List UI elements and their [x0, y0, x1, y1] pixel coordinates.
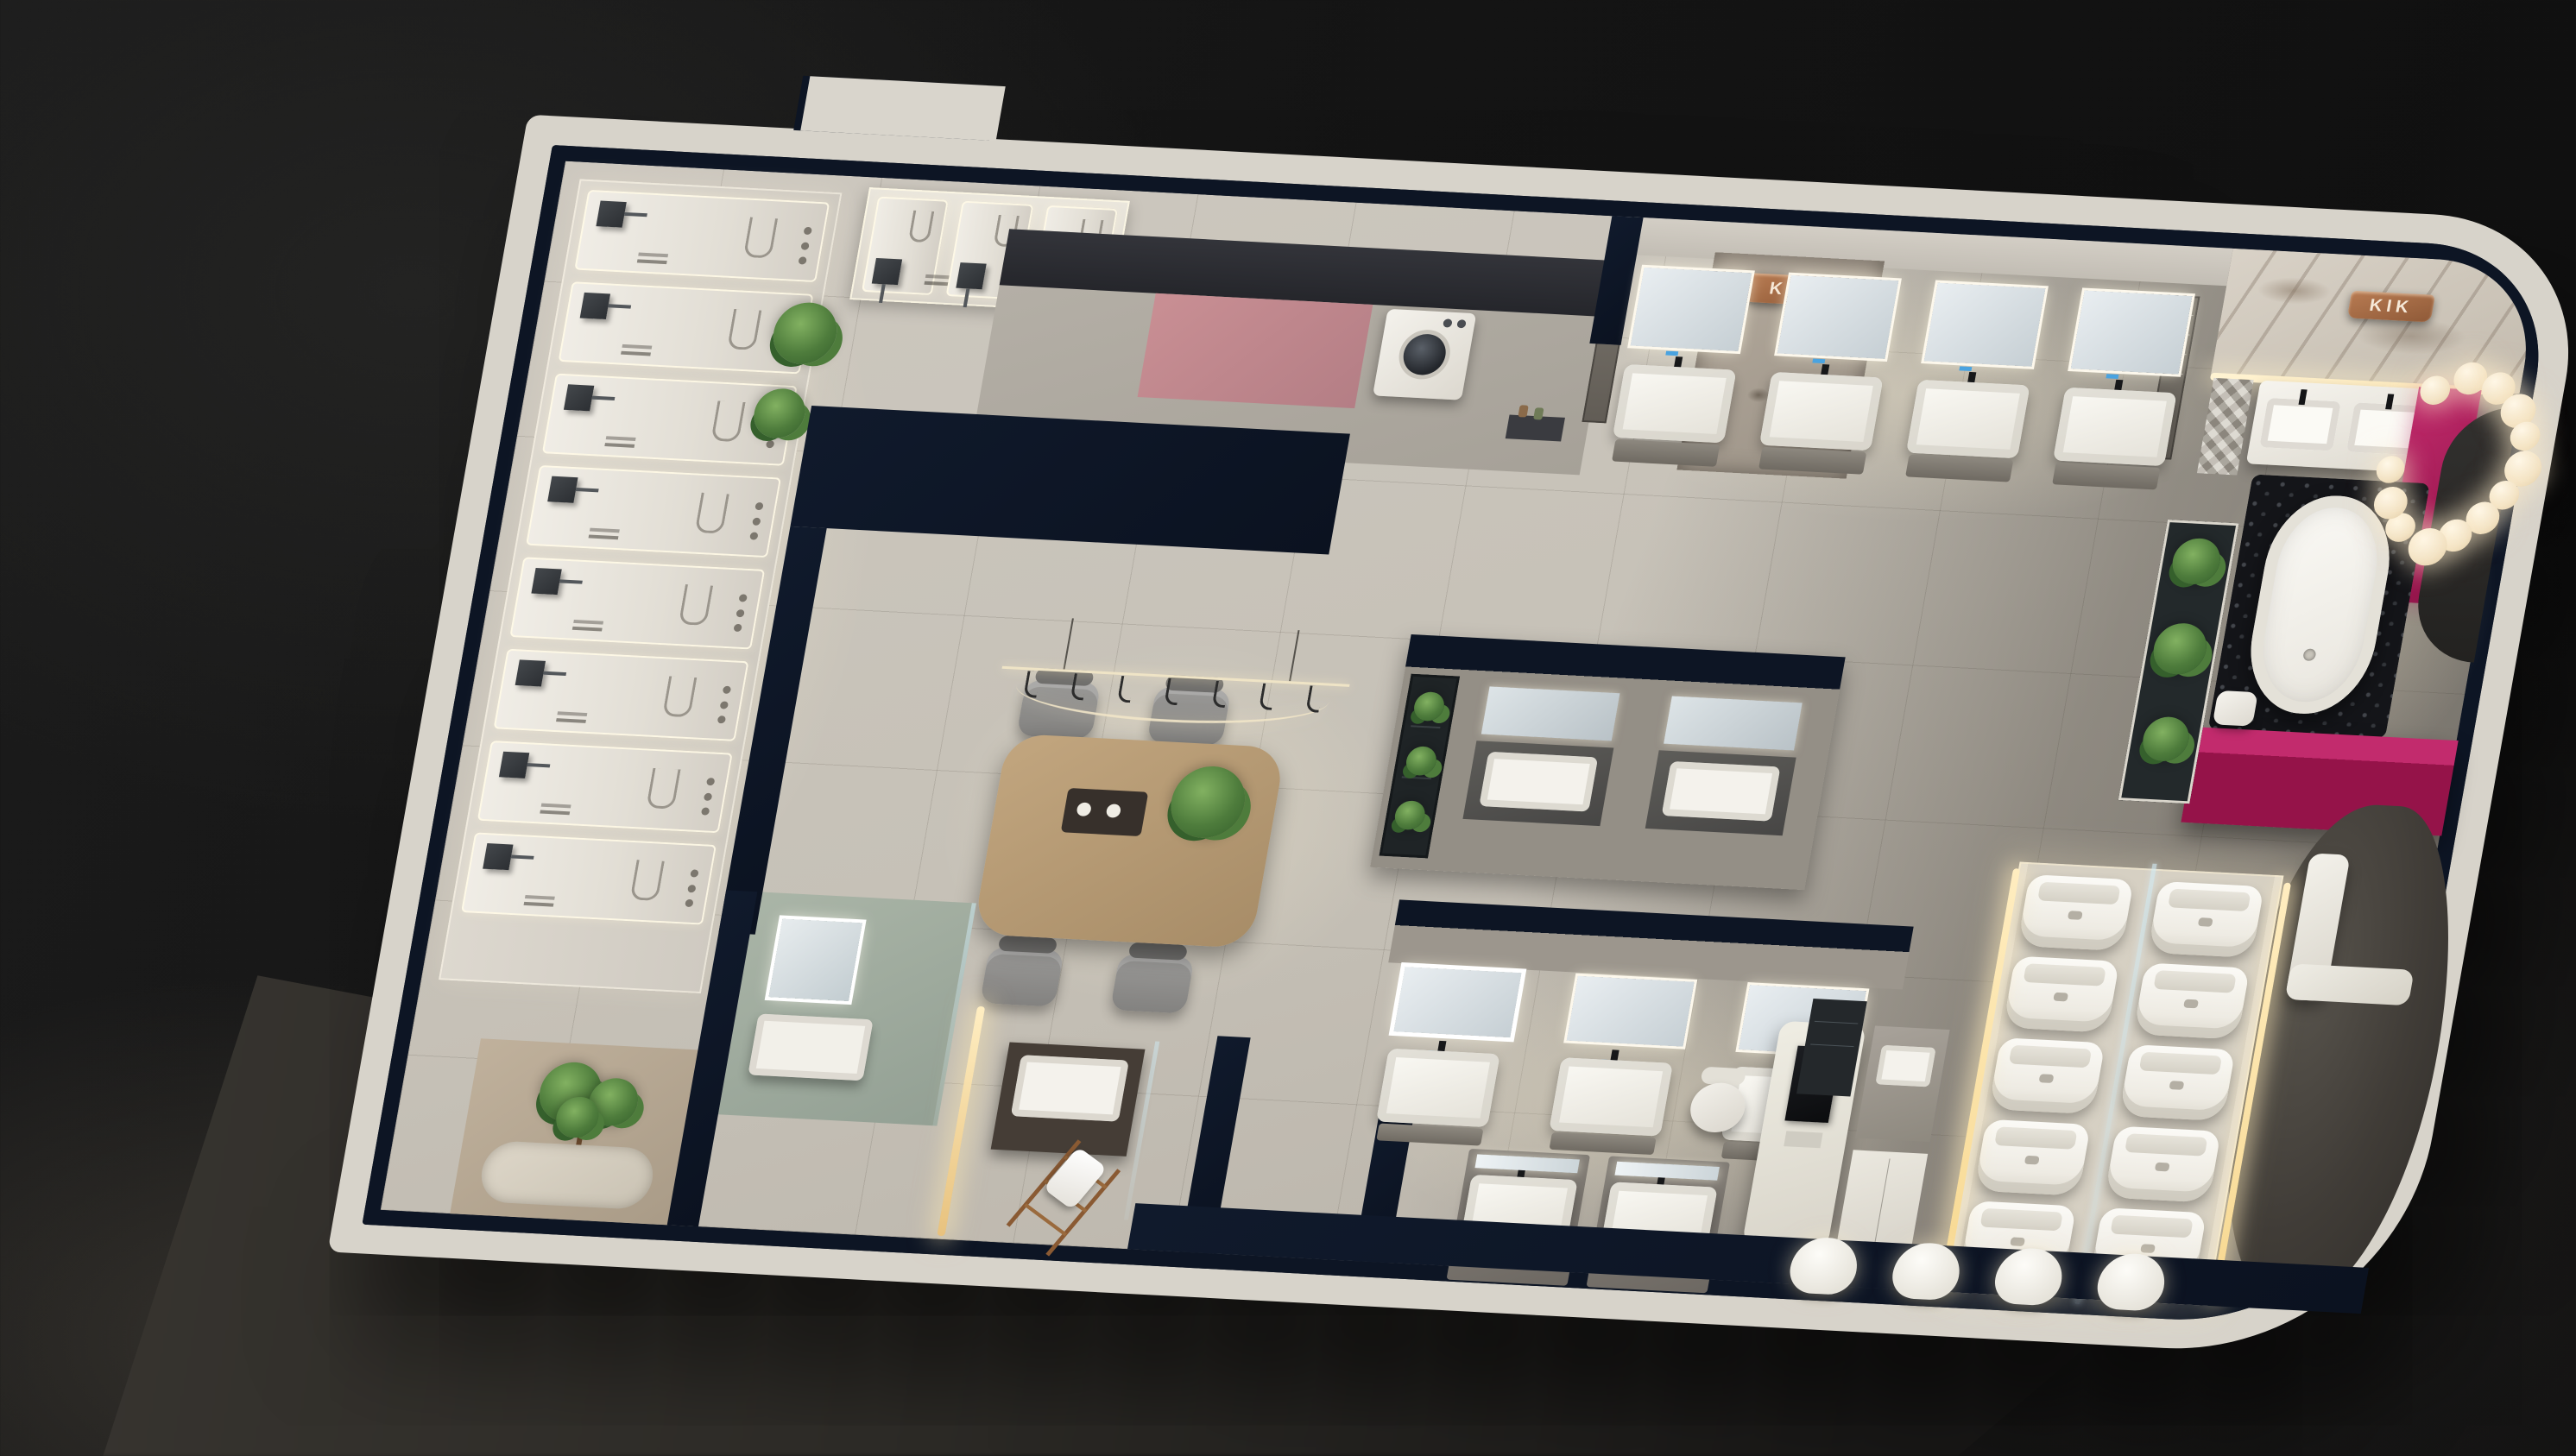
showroom-building: KIK	[362, 145, 2559, 1330]
hook	[1211, 681, 1228, 708]
led-mirror	[2071, 291, 2193, 375]
hook	[1259, 684, 1276, 710]
product-code-label	[589, 534, 619, 539]
washer-door	[1400, 333, 1449, 376]
hook	[1117, 676, 1134, 703]
vanity-cabinet	[2052, 463, 2160, 490]
shower-panel	[494, 649, 749, 741]
keyboard	[1784, 1131, 1822, 1148]
mixer-knobs	[685, 869, 700, 907]
rain-shower-head	[531, 568, 561, 595]
led-mirror	[1631, 268, 1752, 351]
rain-shower-head	[564, 384, 594, 411]
led-mirror	[1777, 275, 1899, 359]
vase	[1518, 405, 1528, 417]
chair-seat	[1687, 1081, 1749, 1133]
vanity-unit	[1451, 686, 1629, 864]
hand-shower-hose	[908, 211, 935, 243]
price-tag	[1959, 366, 1972, 371]
toilet	[2118, 1044, 2235, 1121]
mixer-knobs	[717, 686, 733, 724]
cups	[1076, 802, 1092, 816]
shower-panel	[574, 190, 830, 282]
shelf-plant	[1392, 800, 1427, 830]
render-canvas: { "scene": { "description": "Top-down 3D…	[0, 0, 2576, 1456]
consultation-area	[906, 612, 1376, 1032]
washbasin	[1613, 364, 1737, 443]
textured-tile-column	[2197, 378, 2254, 476]
toilet	[2148, 881, 2264, 958]
rain-shower-head	[483, 843, 513, 870]
washbasin	[2259, 398, 2341, 451]
bench-seat	[2285, 963, 2415, 1005]
vanity-unit	[1633, 696, 1811, 873]
shower-panel	[509, 557, 765, 649]
led-mirror	[1481, 686, 1620, 741]
washbasin	[1906, 380, 2030, 458]
vanity-cabinet	[1758, 447, 1866, 475]
price-tag	[1665, 351, 1678, 356]
product-code-label	[524, 902, 554, 907]
hand-shower-hose	[710, 400, 745, 442]
pendant-wire	[1289, 630, 1299, 681]
shower-panel	[862, 197, 949, 296]
towel	[1043, 1147, 1107, 1210]
exterior-wall-fin	[800, 76, 1005, 141]
indoor-tree	[513, 1051, 660, 1151]
pendant-light	[991, 630, 1356, 750]
wall-hung-basin	[1786, 1236, 1862, 1295]
chair	[980, 947, 1064, 1007]
toilet	[2003, 956, 2119, 1033]
product-code-label	[621, 351, 651, 356]
product-code-label	[604, 443, 635, 448]
hook	[1165, 678, 1182, 705]
hand-shower-hose	[743, 217, 778, 259]
hook	[1023, 671, 1040, 697]
led-mirror	[1393, 967, 1521, 1037]
vanity-unit	[2042, 287, 2203, 502]
toilet	[2017, 874, 2134, 951]
hand-shower-hose	[695, 493, 729, 534]
vanity-cabinet	[1612, 439, 1720, 467]
plant	[2139, 715, 2192, 762]
decor-shelf	[1506, 415, 1565, 442]
price-tag	[1812, 358, 1825, 363]
chandelier-bulb	[2418, 375, 2453, 406]
wall-hung-basin	[1889, 1241, 1965, 1301]
island-vanity-units	[1451, 686, 1811, 873]
led-mirror-strip	[1474, 1154, 1580, 1173]
chandelier-bulb	[2374, 455, 2407, 483]
rain-shower-head	[872, 258, 902, 285]
office-chair	[1679, 1066, 1758, 1144]
wall-hung-basin	[2093, 1252, 2169, 1312]
rain-shower-head	[957, 262, 987, 289]
hand-shower-hose	[679, 584, 713, 626]
washing-machine	[1373, 309, 1476, 400]
kik-logo-sign-marble: KIK	[2347, 291, 2435, 323]
hand-shower-hose	[646, 768, 680, 810]
wall-hung-basin	[1991, 1247, 2067, 1307]
mixer-knobs	[749, 502, 765, 540]
toilet	[2105, 1126, 2221, 1203]
product-code-label	[540, 810, 570, 816]
rain-shower-head	[580, 293, 610, 319]
rose-worktop	[1138, 293, 1373, 408]
toilet	[1988, 1037, 2105, 1114]
shower-panel	[477, 741, 733, 833]
washer-dials	[1456, 319, 1467, 328]
display-sink	[1875, 1045, 1935, 1087]
toilet	[1974, 1119, 2091, 1196]
pendant-wire	[1064, 618, 1074, 669]
washbasin	[1011, 1055, 1129, 1121]
hand-shower-hose	[630, 860, 665, 901]
rain-shower-head	[547, 476, 578, 503]
led-mirror	[768, 919, 862, 1001]
vanity-unit	[1895, 279, 2056, 495]
led-mirror	[1566, 976, 1694, 1047]
rain-shower-head	[596, 201, 626, 228]
hook	[1070, 673, 1088, 700]
plant	[2150, 622, 2211, 676]
hand-shower-hose	[662, 676, 697, 717]
dark-vanity-cabinet	[991, 1043, 1146, 1157]
product-code-label	[556, 718, 586, 723]
built-in-bench	[2285, 853, 2434, 1005]
table-plant	[1165, 765, 1251, 840]
washbasin	[748, 1013, 873, 1081]
washbasin	[1479, 752, 1598, 812]
bath-stool	[2213, 690, 2258, 727]
mixer-knobs	[798, 227, 813, 265]
vanity-cabinet	[1905, 455, 2013, 482]
shower-panel	[526, 465, 781, 558]
product-code-label	[637, 259, 667, 264]
rain-shower-head	[499, 752, 529, 778]
led-mirror	[1924, 283, 2046, 367]
washbasin	[1549, 1057, 1673, 1136]
led-mirror	[1664, 696, 1803, 750]
washbasin	[1759, 372, 1884, 451]
plant	[2169, 537, 2224, 585]
product-code-label	[572, 627, 603, 632]
vanity-unit	[1367, 963, 1549, 1148]
washbasin	[2053, 388, 2177, 466]
serving-tray	[1061, 788, 1149, 836]
washbasin	[1662, 761, 1781, 822]
top-vanity-row	[1601, 263, 2203, 502]
sage-fitting-room	[718, 892, 976, 1125]
shelf-plant	[1404, 746, 1438, 776]
vanity-cabinet	[1549, 1132, 1656, 1155]
consultation-table	[973, 734, 1286, 949]
shelf-plant	[1411, 691, 1446, 722]
showroom-floor: KIK	[362, 145, 2559, 1330]
mixer-knobs	[701, 778, 717, 816]
mixer-knobs	[733, 594, 748, 632]
led-mirror-strip	[1614, 1162, 1720, 1181]
vanity-unit	[1748, 271, 1910, 487]
chair	[1110, 954, 1195, 1014]
washbasin	[1376, 1049, 1500, 1127]
toilet	[2133, 963, 2250, 1040]
shower-panel	[461, 832, 717, 924]
rain-shower-head	[515, 659, 546, 686]
price-tag	[2106, 374, 2118, 379]
hand-shower-hose	[727, 309, 761, 350]
